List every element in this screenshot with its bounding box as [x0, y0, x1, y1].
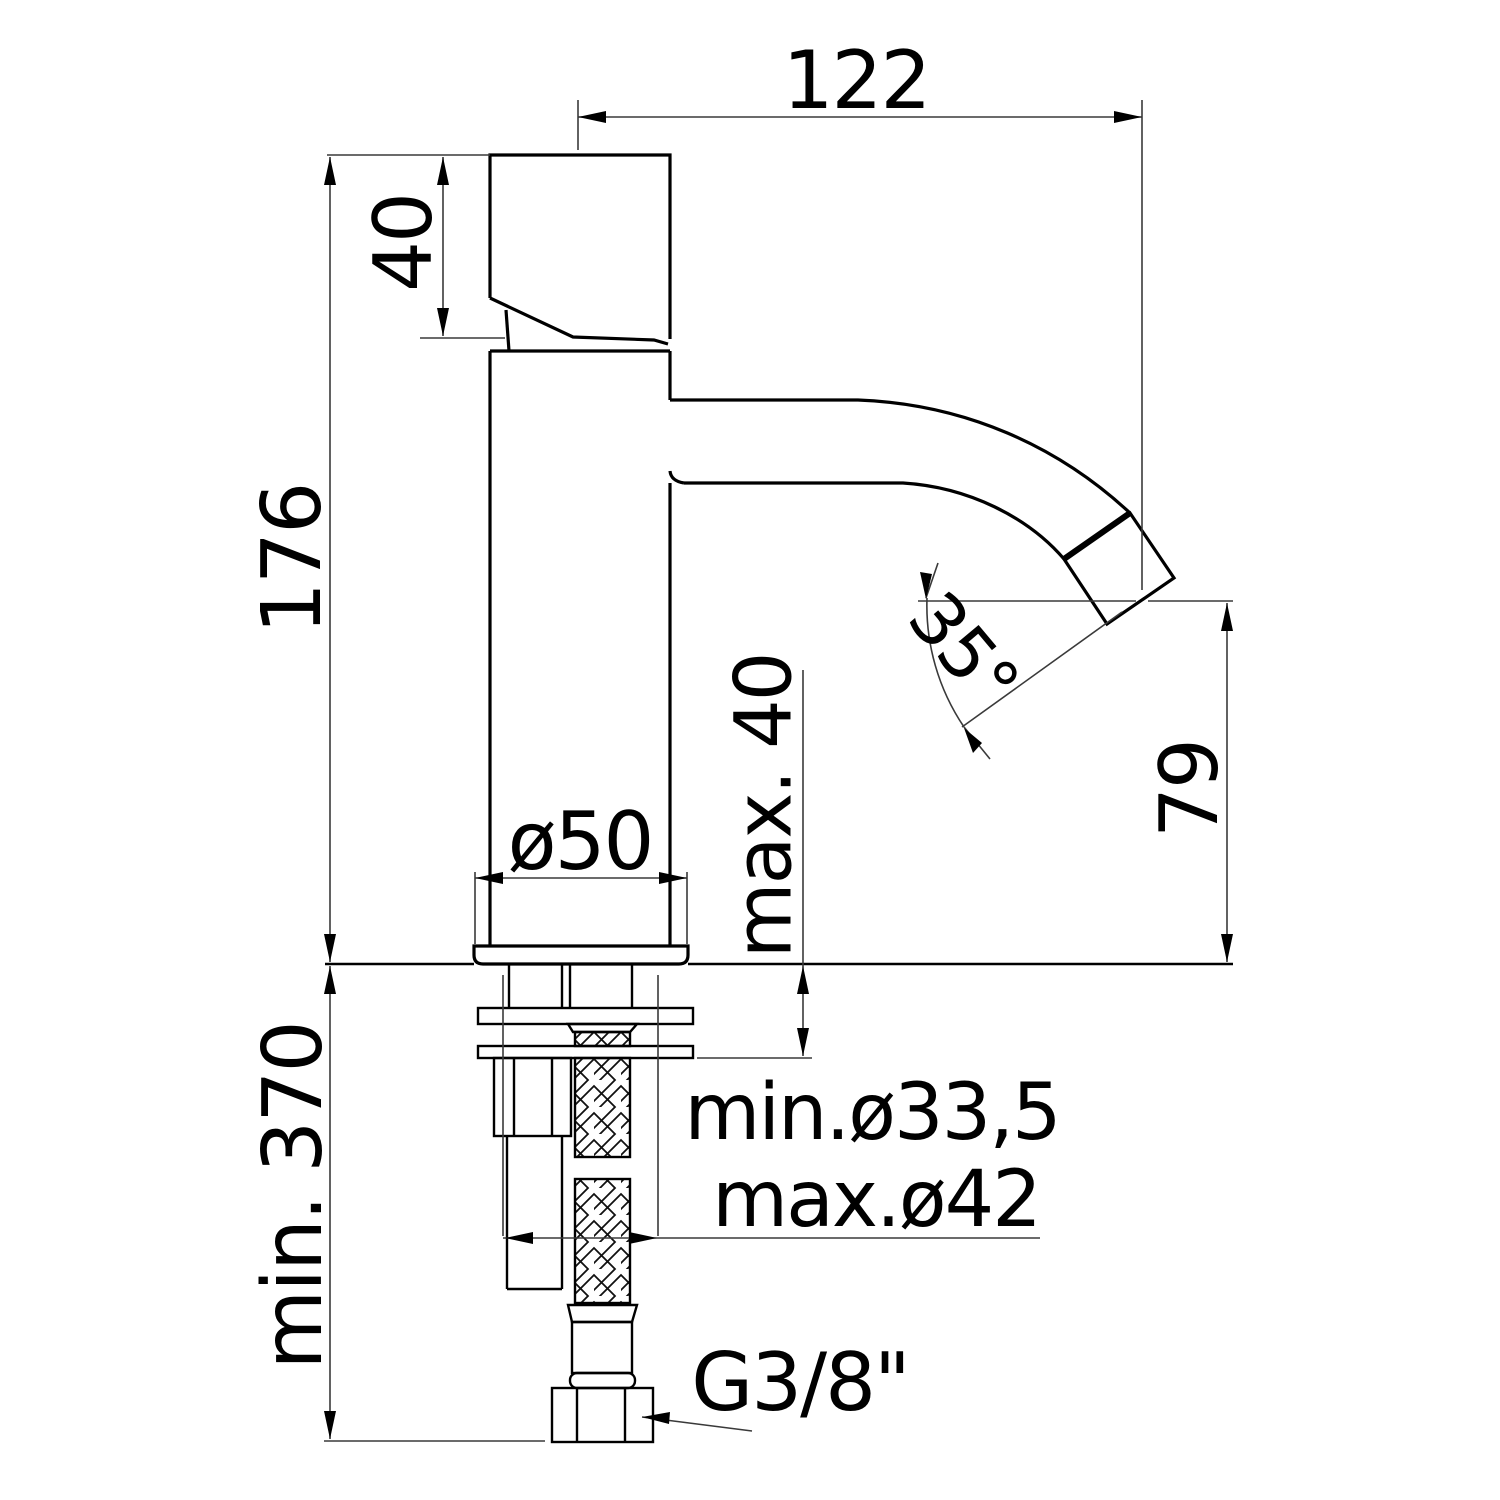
- technical-drawing-canvas: 122 40 176 ø50 max. 40 35° 79 min. 370 m…: [0, 0, 1500, 1500]
- mounting-washer-top: [478, 1008, 693, 1024]
- hose-fitting-collar: [568, 1024, 637, 1046]
- label-base-diameter: ø50: [508, 795, 653, 888]
- label-spout-angle: 35°: [892, 576, 1035, 723]
- handle-seam-line: [506, 310, 509, 351]
- label-deck-max-thickness: max. 40: [720, 654, 810, 959]
- label-min-space-below: min. 370: [246, 1022, 341, 1369]
- label-supply-connection: G3/8": [691, 1336, 909, 1429]
- dimension-labels: 122 40 176 ø50 max. 40 35° 79 min. 370 m…: [245, 34, 1236, 1429]
- base-flange: [474, 946, 688, 964]
- label-hole-min-diameter: min.ø33,5: [684, 1068, 1059, 1158]
- spout: [667, 400, 1130, 559]
- braided-supply-hose: [575, 1058, 630, 1303]
- threaded-shank: [509, 965, 632, 1008]
- label-spout-reach: 122: [783, 34, 930, 127]
- label-handle-height: 40: [357, 194, 450, 292]
- lever-handle: [490, 155, 670, 351]
- label-spout-outlet-height: 79: [1143, 740, 1236, 838]
- mounting-nut: [494, 1058, 571, 1136]
- label-hole-max-diameter: max.ø42: [712, 1155, 1040, 1245]
- faucet-dimension-drawing: 122 40 176 ø50 max. 40 35° 79 min. 370 m…: [0, 0, 1500, 1500]
- hose-ferrule: [568, 1305, 637, 1388]
- second-supply-hose: [507, 1136, 562, 1289]
- label-total-height: 176: [245, 484, 340, 635]
- mounting-washer-bottom: [478, 1046, 693, 1058]
- connection-nut: [552, 1388, 653, 1442]
